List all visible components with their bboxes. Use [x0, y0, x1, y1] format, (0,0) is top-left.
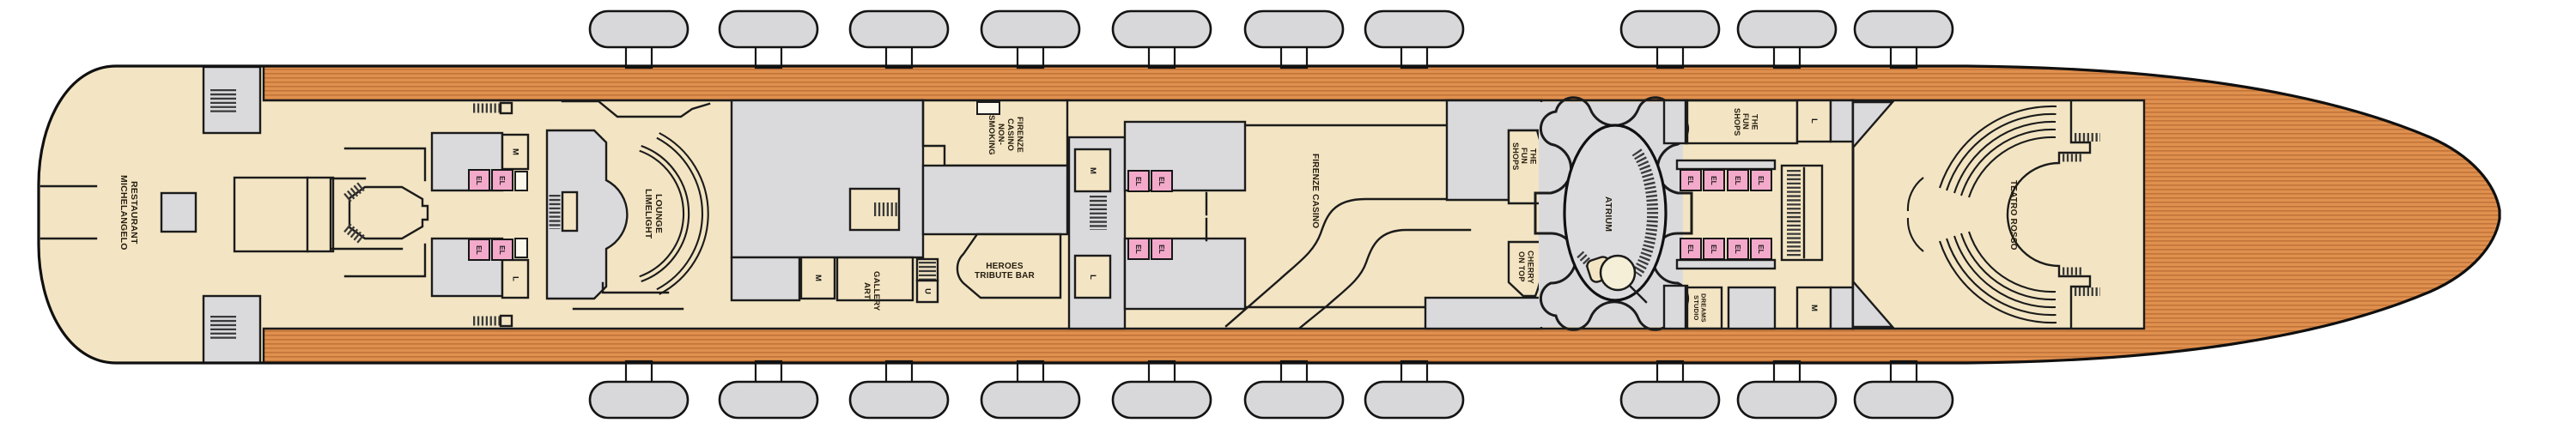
lifeboat — [850, 11, 948, 47]
elevator-marker: EL — [468, 239, 490, 261]
lifeboat — [1245, 382, 1343, 418]
atrium-bar — [1601, 256, 1635, 290]
elevator-marker: EL — [491, 169, 513, 191]
elevator-marker: EL — [1703, 169, 1725, 191]
elevator-marker: EL — [1680, 238, 1702, 260]
mens-room-label: M — [801, 257, 835, 299]
ladies-room-label: L — [1797, 100, 1831, 142]
lifeboat — [590, 382, 688, 418]
elevator-marker: EL — [491, 239, 513, 261]
lifeboat — [1113, 382, 1211, 418]
deck-plan-drawing — [0, 0, 2576, 429]
fun-shops-label: THE FUN SHOPS — [1508, 136, 1540, 177]
elevator-marker: EL — [1127, 170, 1150, 192]
teatro-rosso-label: TEATRO ROSSO — [2006, 165, 2020, 266]
stern-stairs-top — [204, 67, 260, 133]
ladies-room-label: L — [502, 260, 528, 298]
lifeboat — [1738, 11, 1836, 47]
michelangelo-restaurant-label: MICHELANGELO RESTAURANT — [108, 157, 149, 269]
elevator-marker: EL — [1727, 238, 1749, 260]
elevator-marker: EL — [1750, 169, 1772, 191]
elevator-marker: EL — [1750, 238, 1772, 260]
lifeboat — [1113, 11, 1211, 47]
stairs-up-label: U — [917, 281, 938, 302]
lifeboat — [981, 11, 1079, 47]
elevator-marker: EL — [1127, 238, 1150, 260]
booth — [562, 192, 577, 231]
cherry-on-top-label: CHERRY ON TOP — [1513, 242, 1539, 292]
heroes-tribute-bar-label: HEROES TRIBUTE BAR — [960, 256, 1049, 287]
lifeboat — [590, 11, 688, 47]
mens-room-label: M — [1075, 149, 1110, 191]
elevator-marker: EL — [1727, 169, 1749, 191]
dreams-studio-label: DREAMS STUDIO — [1688, 288, 1710, 328]
lifeboat — [981, 382, 1079, 418]
lifeboat — [720, 382, 817, 418]
firenze-casino-label: FIRENZE CASINO — [1307, 142, 1322, 240]
firenze-casino-nonsmoking-label: FIRENZE CASINO NON- SMOKING — [982, 101, 1027, 168]
atrium-label: ATRIUM — [1601, 178, 1616, 251]
lifeboat — [1245, 11, 1343, 47]
ladies-room-label: L — [1075, 256, 1110, 298]
elevator-marker: EL — [1151, 170, 1173, 192]
deck-plan: MICHELANGELO RESTAURANT LIMELIGHT LOUNGE… — [0, 0, 2576, 429]
service-block — [161, 193, 196, 232]
lifeboat — [1365, 382, 1463, 418]
mens-room-label: M — [1797, 287, 1831, 329]
art-gallery-label: ART GALLERY — [859, 260, 883, 322]
elevator-marker: EL — [1151, 238, 1173, 260]
elevator-marker: EL — [468, 169, 490, 191]
lifeboat — [1621, 11, 1719, 47]
limelight-lounge-label: LIMELIGHT LOUNGE — [636, 173, 671, 255]
elevator-marker: EL — [1680, 169, 1702, 191]
lifeboat — [1621, 382, 1719, 418]
lifeboat — [850, 382, 948, 418]
lifeboat — [1855, 11, 1953, 47]
lifeboat — [1738, 382, 1836, 418]
elevator-marker: EL — [1703, 238, 1725, 260]
lifeboat — [1365, 11, 1463, 47]
fun-shops-forward-label: THE FUN SHOPS — [1729, 101, 1762, 142]
mens-room-label: M — [502, 135, 528, 169]
lifeboat — [720, 11, 817, 47]
lifeboat — [1855, 382, 1953, 418]
